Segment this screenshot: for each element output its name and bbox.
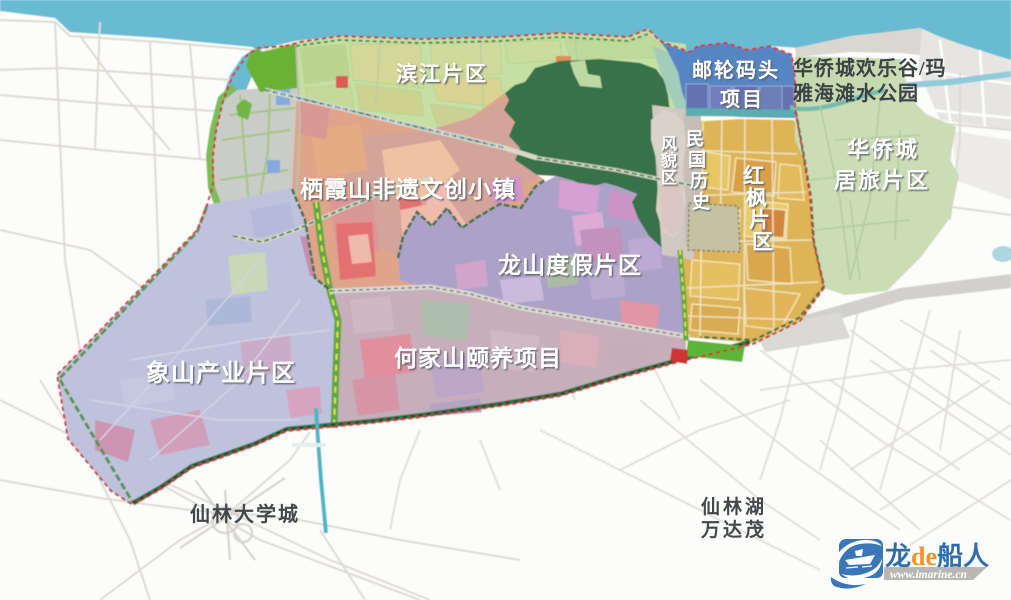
svg-text:史: 史 (692, 191, 711, 212)
svg-text:龙山度假片区: 龙山度假片区 (498, 252, 642, 278)
svg-text:象山产业片区: 象山产业片区 (146, 359, 296, 387)
svg-text:历: 历 (690, 171, 708, 191)
svg-text:雅海滩水公园: 雅海滩水公园 (793, 81, 919, 105)
svg-text:仙林大学城: 仙林大学城 (190, 502, 300, 526)
svg-text:居旅片区: 居旅片区 (834, 168, 930, 193)
svg-text:www.imarine.cn: www.imarine.cn (890, 569, 967, 581)
svg-text:貌: 貌 (660, 151, 677, 170)
svg-text:万达茂: 万达茂 (700, 518, 767, 541)
svg-text:风: 风 (661, 135, 677, 153)
svg-text:片: 片 (749, 208, 770, 232)
svg-text:华侨城: 华侨城 (847, 137, 919, 162)
svg-text:龙de船人: 龙de船人 (885, 541, 989, 571)
svg-text:区: 区 (661, 169, 677, 187)
svg-text:栖霞山非遗文创小镇: 栖霞山非遗文创小镇 (300, 176, 516, 202)
svg-text:仙林湖: 仙林湖 (701, 495, 767, 518)
svg-text:红: 红 (743, 164, 764, 188)
svg-text:何家山颐养项目: 何家山颐养项目 (394, 345, 562, 371)
svg-text:国: 国 (688, 150, 706, 170)
svg-text:邮轮码头: 邮轮码头 (692, 58, 780, 82)
svg-text:区: 区 (752, 230, 773, 254)
svg-text:民: 民 (686, 129, 704, 149)
svg-text:华侨城欢乐谷/玛: 华侨城欢乐谷/玛 (793, 56, 947, 80)
svg-text:滨江片区: 滨江片区 (396, 62, 488, 86)
svg-text:项目: 项目 (720, 88, 764, 111)
svg-text:枫: 枫 (746, 186, 767, 210)
